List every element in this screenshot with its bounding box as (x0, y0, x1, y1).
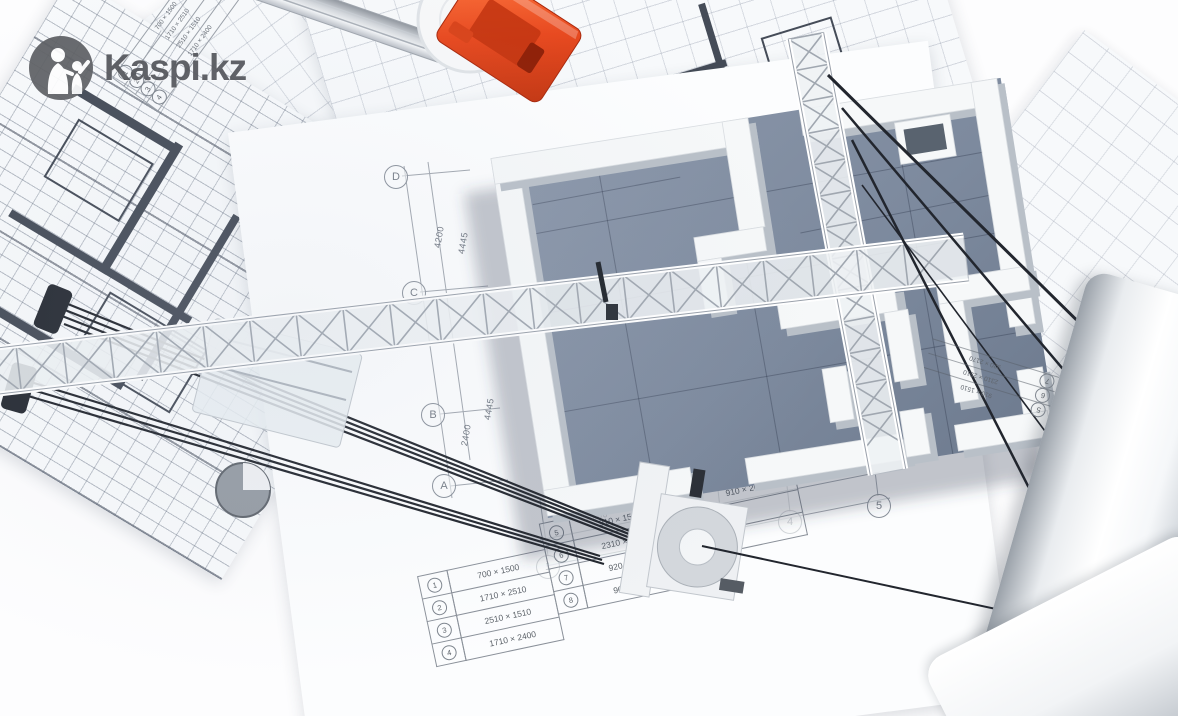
logo-text: Kaspi.kz (104, 47, 246, 89)
red-fob (433, 0, 584, 105)
key-and-fob (0, 0, 1178, 716)
kaspi-people-icon (28, 32, 96, 104)
kaspi-logo: Kaspi.kz (28, 32, 246, 104)
blueprint-scene: 1700 × 1500 21710 × 2510 32510 × 1510 41… (0, 0, 1178, 716)
